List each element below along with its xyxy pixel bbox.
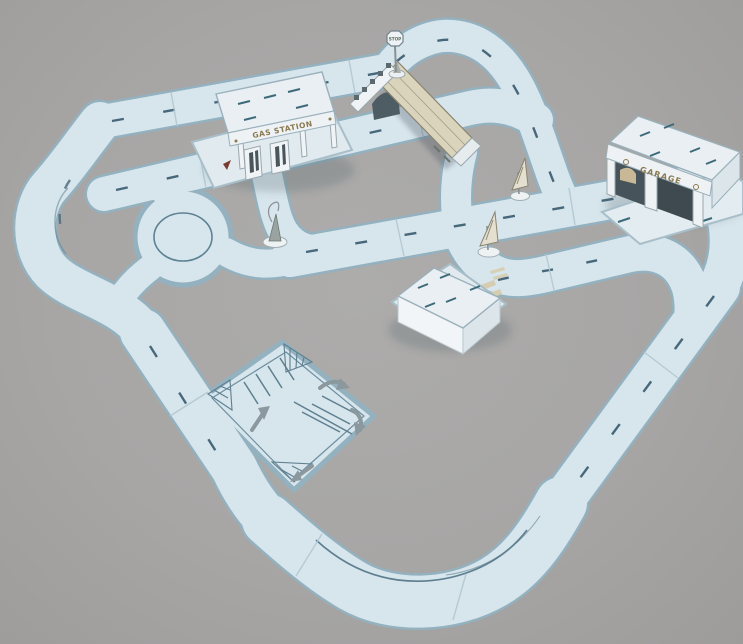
signpost-blade: [512, 158, 528, 190]
road-surfaces: [35, 36, 730, 602]
triangle-signpost-east: [511, 158, 530, 201]
stop-sign-pole: [395, 46, 396, 72]
toy-road-track-playset-photo: GAS STATION: [0, 0, 743, 644]
playset-illustration: GAS STATION: [0, 0, 743, 644]
signpost-base: [478, 247, 500, 257]
signpost-base: [511, 192, 530, 201]
fascia-dot-right: [329, 118, 332, 121]
fascia-dot-left: [235, 140, 238, 143]
stop-sign-text: STOP: [389, 37, 402, 42]
road-network: [35, 36, 730, 620]
